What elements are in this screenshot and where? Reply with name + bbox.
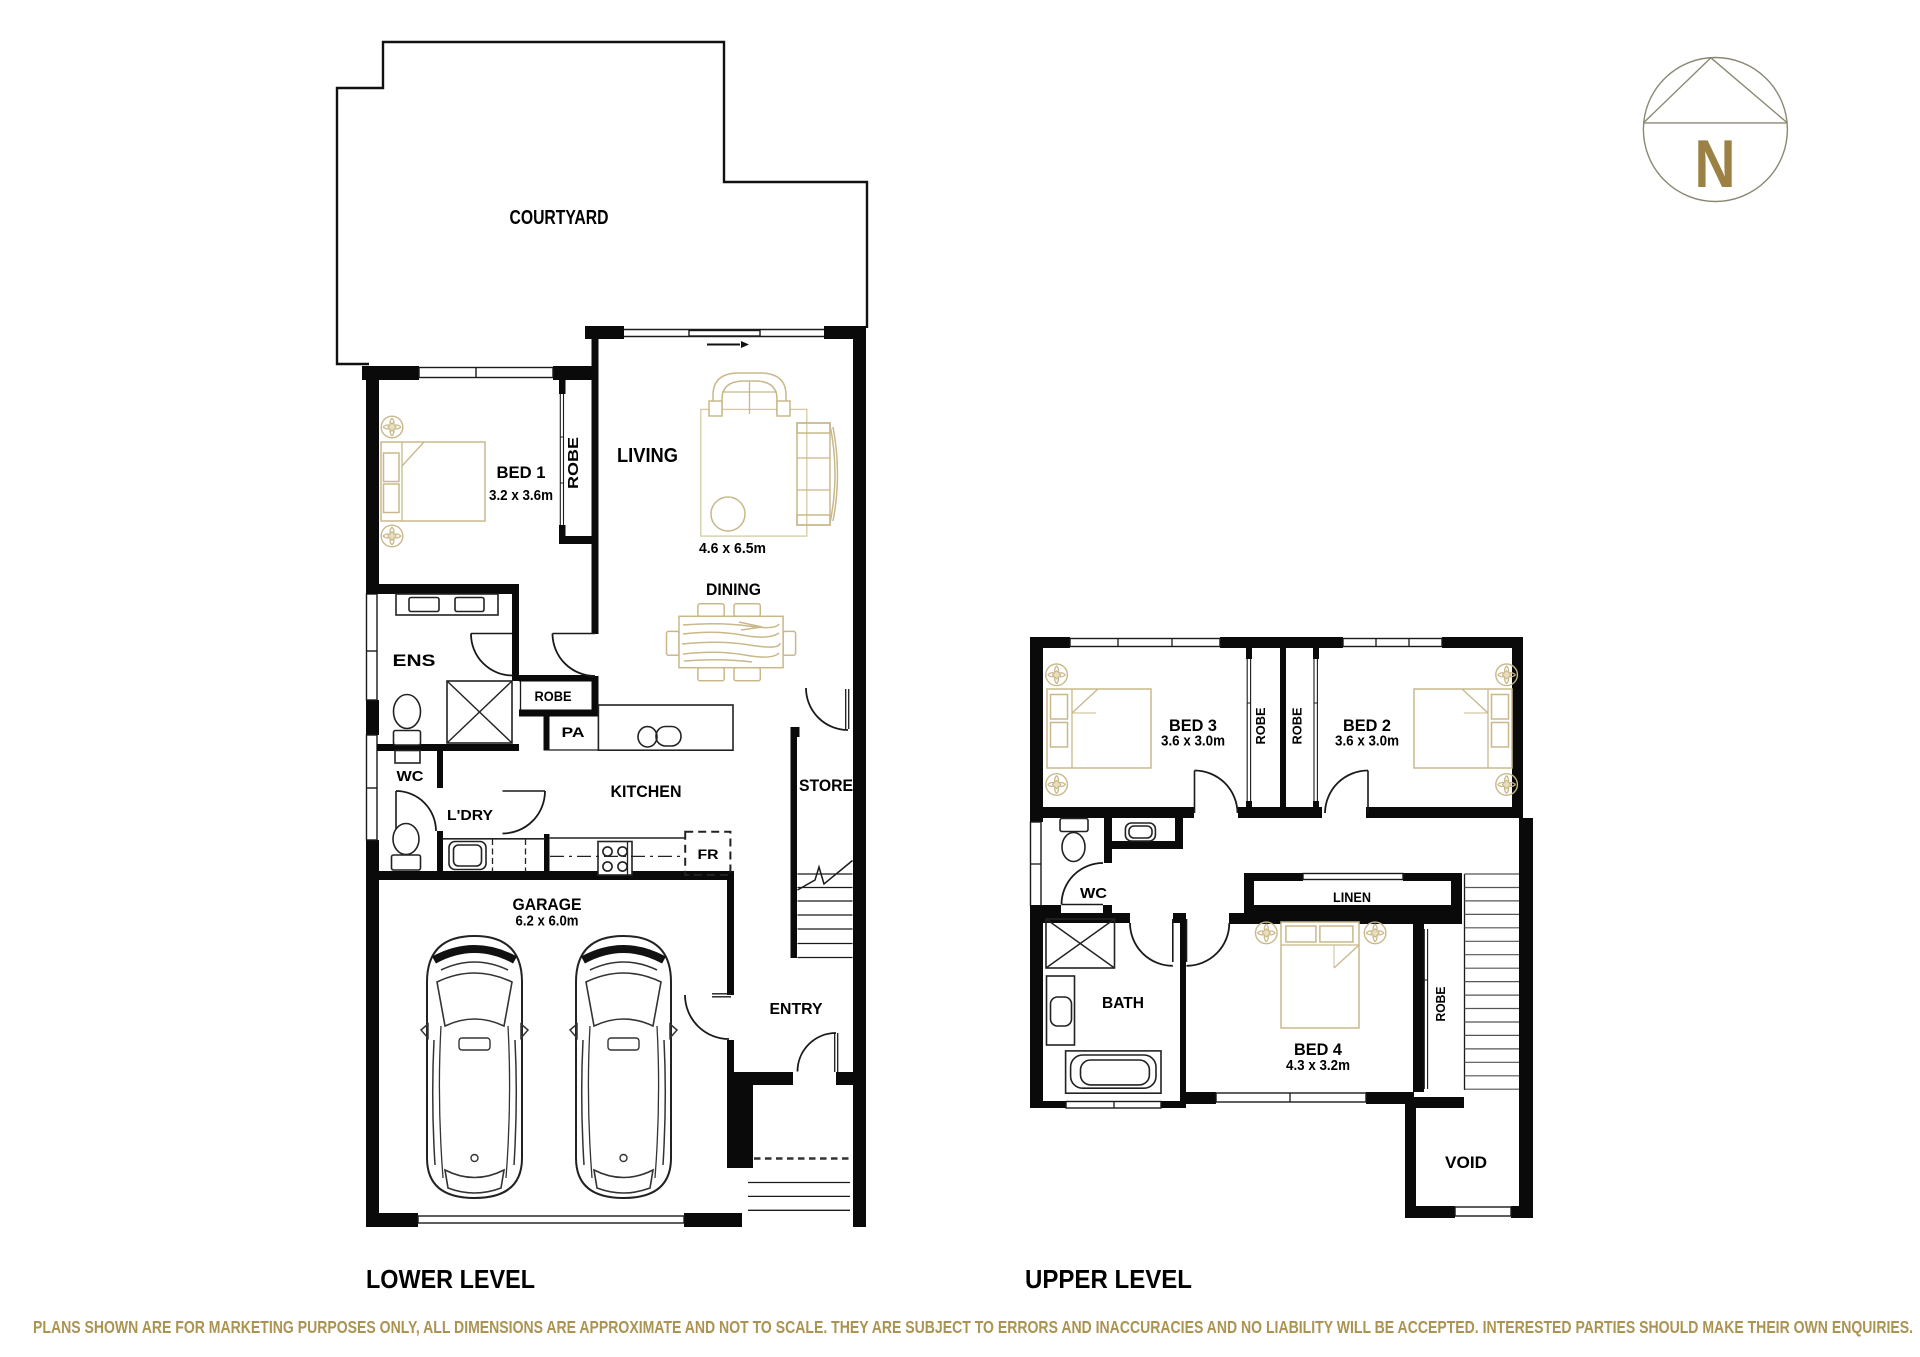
svg-text:ROBE: ROBE (565, 437, 582, 489)
svg-text:ROBE: ROBE (1433, 986, 1448, 1021)
svg-text:3.6 x 3.0m: 3.6 x 3.0m (1335, 733, 1399, 750)
svg-text:BED 1: BED 1 (497, 463, 546, 482)
svg-text:N: N (1695, 126, 1736, 202)
svg-text:LOWER LEVEL: LOWER LEVEL (366, 1264, 535, 1294)
svg-text:FR: FR (698, 847, 719, 862)
svg-text:ROBE: ROBE (1290, 707, 1305, 744)
svg-text:UPPER LEVEL: UPPER LEVEL (1025, 1264, 1192, 1294)
svg-text:KITCHEN: KITCHEN (611, 782, 682, 801)
svg-text:LINEN: LINEN (1333, 890, 1371, 905)
svg-text:3.2 x 3.6m: 3.2 x 3.6m (489, 487, 553, 504)
svg-text:3.6 x 3.0m: 3.6 x 3.0m (1161, 733, 1225, 750)
svg-text:LIVING: LIVING (617, 444, 678, 467)
svg-text:VOID: VOID (1445, 1154, 1487, 1172)
svg-text:COURTYARD: COURTYARD (510, 206, 609, 229)
svg-text:DINING: DINING (706, 580, 761, 599)
svg-text:GARAGE: GARAGE (513, 895, 582, 914)
svg-text:ENTRY: ENTRY (770, 1001, 823, 1018)
svg-text:4.6 x 6.5m: 4.6 x 6.5m (699, 540, 766, 557)
svg-text:ROBE: ROBE (1253, 707, 1268, 744)
svg-text:ROBE: ROBE (535, 689, 572, 704)
svg-text:PA: PA (562, 724, 585, 740)
svg-text:BATH: BATH (1102, 995, 1144, 1012)
svg-text:WC: WC (1080, 885, 1107, 902)
svg-text:WC: WC (397, 768, 424, 785)
svg-text:6.2 x 6.0m: 6.2 x 6.0m (516, 913, 579, 930)
svg-text:STORE: STORE (799, 777, 853, 795)
svg-text:PLANS SHOWN ARE FOR MARKETING: PLANS SHOWN ARE FOR MARKETING PURPOSES O… (33, 1317, 1913, 1337)
svg-text:4.3 x 3.2m: 4.3 x 3.2m (1286, 1057, 1350, 1074)
svg-text:ENS: ENS (393, 651, 436, 670)
svg-text:L'DRY: L'DRY (447, 807, 493, 824)
